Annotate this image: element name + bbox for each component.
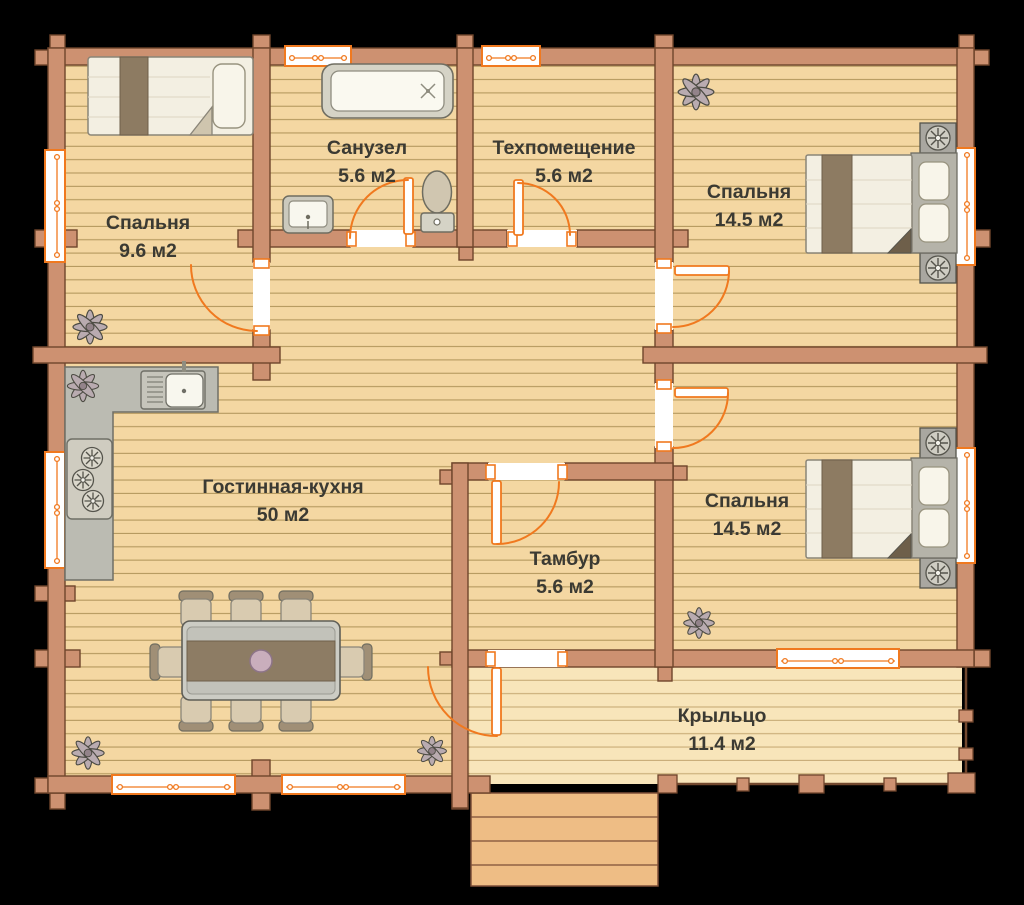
wall-kitchen-top <box>33 347 280 363</box>
log-end <box>673 466 687 480</box>
room-label-tech-room: Техпомещение 5.6 м2 <box>493 134 636 190</box>
window-kitchen-left <box>45 452 65 568</box>
chair <box>179 696 213 731</box>
room-area: 9.6 м2 <box>106 237 190 265</box>
room-label-bedroom-3: Спальня 14.5 м2 <box>705 487 789 543</box>
log-end <box>440 470 453 484</box>
window-bedroom2-right <box>955 148 975 265</box>
wall-bedrooms-divider <box>643 347 987 363</box>
wall-bathroom-tech <box>457 48 473 247</box>
room-area: 5.6 м2 <box>327 162 407 190</box>
room-label-bedroom-1: Спальня 9.6 м2 <box>106 209 190 265</box>
window-tech-top <box>482 46 540 66</box>
pillow <box>919 204 949 242</box>
room-label-bedroom-2: Спальня 14.5 м2 <box>707 178 791 234</box>
room-name: Спальня <box>707 178 791 206</box>
sink-bathroom <box>283 196 333 233</box>
log-end <box>50 793 65 809</box>
bathtub <box>322 64 453 118</box>
window-living-bottom-2 <box>282 775 405 794</box>
room-name: Техпомещение <box>493 134 636 162</box>
room-name: Спальня <box>106 209 190 237</box>
dining-table <box>182 621 340 700</box>
wall-vestibule-top <box>565 463 673 480</box>
wall-vestibule-left <box>452 463 468 808</box>
room-name: Гостинная-кухня <box>202 473 363 501</box>
room-name: Крыльцо <box>678 702 767 730</box>
room-label-porch: Крыльцо 11.4 м2 <box>678 702 767 758</box>
pillow <box>919 509 949 547</box>
chair <box>150 644 186 680</box>
porch-steps <box>471 793 658 886</box>
plant-icon <box>67 370 98 401</box>
log-end <box>440 652 453 665</box>
room-label-bathroom: Санузел 5.6 м2 <box>327 134 407 190</box>
log-end <box>459 247 473 260</box>
plant-icon <box>418 737 447 766</box>
plant-icon <box>684 608 715 639</box>
room-area: 50 м2 <box>202 501 363 529</box>
room-name: Тамбур <box>530 545 601 573</box>
plant-icon <box>73 310 107 344</box>
stove <box>67 439 112 519</box>
pillow <box>213 64 245 128</box>
room-area: 5.6 м2 <box>530 573 601 601</box>
toilet <box>421 171 454 232</box>
room-label-vestibule: Тамбур 5.6 м2 <box>530 545 601 601</box>
room-area: 11.4 м2 <box>678 730 767 758</box>
room-label-living-kitchen: Гостинная-кухня 50 м2 <box>202 473 363 529</box>
room-area: 5.6 м2 <box>493 162 636 190</box>
room-area: 14.5 м2 <box>705 515 789 543</box>
plant-icon <box>678 74 714 110</box>
log-end <box>658 667 672 681</box>
wall-hall-vertical <box>655 48 673 262</box>
floor-plan: Спальня 9.6 м2 Санузел 5.6 м2 Техпомещен… <box>0 0 1024 905</box>
pillow <box>919 467 949 505</box>
chair <box>336 644 372 680</box>
room-name: Спальня <box>705 487 789 515</box>
window-bedroom1-left <box>45 150 65 262</box>
room-name: Санузел <box>327 134 407 162</box>
log-end <box>974 650 990 667</box>
window-bathroom-top <box>285 46 351 66</box>
window-porch <box>777 649 899 668</box>
chair <box>279 696 313 731</box>
log-end <box>974 50 989 65</box>
room-area: 14.5 м2 <box>707 206 791 234</box>
chair <box>229 696 263 731</box>
window-bedroom3-right <box>955 448 975 563</box>
pillow <box>919 162 949 200</box>
window-living-bottom-1 <box>112 775 235 794</box>
plant-icon <box>72 737 104 769</box>
wall-bedroom1-right <box>253 48 270 262</box>
bed-single <box>88 57 253 135</box>
